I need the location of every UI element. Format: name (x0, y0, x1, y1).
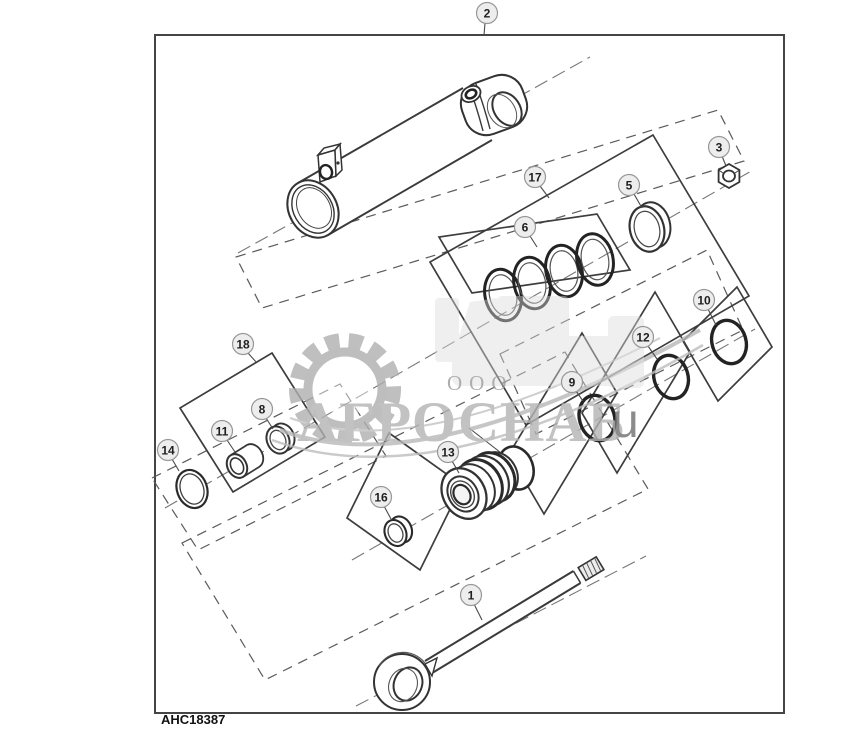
port-dot (336, 161, 339, 164)
figure-code: AHC18387 (161, 712, 225, 727)
callout-17-number: 17 (528, 171, 542, 185)
callout-12-number: 12 (636, 331, 650, 345)
nut-hex (719, 164, 740, 188)
callout-18-number: 18 (236, 338, 250, 352)
port-block-side (335, 144, 342, 176)
callout-9-number: 9 (569, 376, 576, 390)
callout-5-number: 5 (626, 179, 633, 193)
callout-3-number: 3 (716, 141, 723, 155)
callout-6-number: 6 (522, 221, 529, 235)
callout-11-number: 11 (216, 425, 229, 439)
nut (719, 164, 740, 188)
callout-1-number: 1 (468, 589, 475, 603)
callout-16-number: 16 (374, 491, 388, 505)
callout-14-number: 14 (161, 444, 175, 458)
watermark-letter: u (612, 395, 639, 448)
callout-13-number: 13 (441, 446, 455, 460)
parts-diagram-page: ООО АГРОСНАБ u 2 3 5 17 6 (0, 0, 841, 731)
callout-2-number: 2 (484, 7, 491, 21)
exploded-parts-diagram: ООО АГРОСНАБ u 2 3 5 17 6 (0, 0, 841, 731)
callout-2: 2 (477, 3, 498, 36)
callout-10-number: 10 (697, 294, 711, 308)
callout-8-number: 8 (259, 403, 266, 417)
watermark-company-name: АГРОСНАБ (297, 391, 626, 454)
